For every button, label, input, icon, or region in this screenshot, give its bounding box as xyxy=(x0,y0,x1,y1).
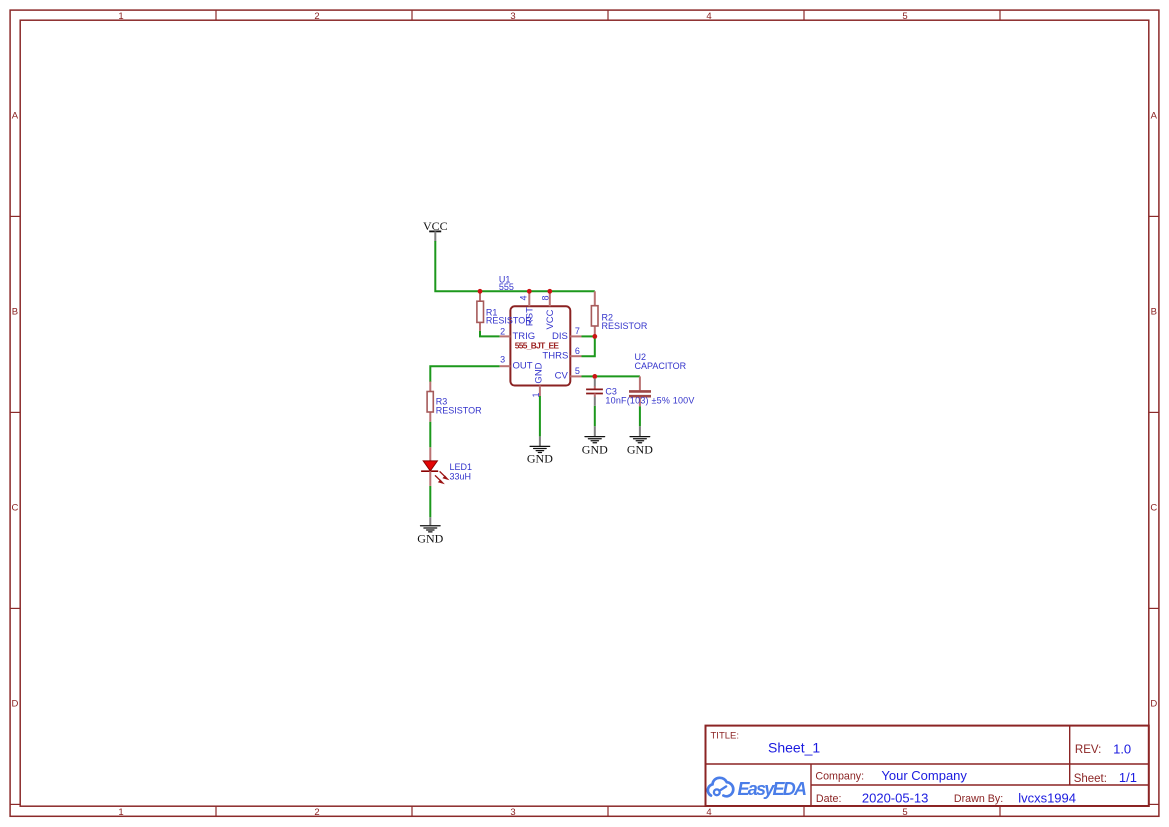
svg-text:C: C xyxy=(11,503,18,514)
svg-text:RESISTOR: RESISTOR xyxy=(602,321,648,331)
svg-text:Date:: Date: xyxy=(816,793,842,805)
svg-text:B: B xyxy=(12,307,18,318)
svg-text:RESISTOR: RESISTOR xyxy=(436,405,482,415)
svg-text:RST: RST xyxy=(525,307,536,326)
svg-text:GND: GND xyxy=(417,531,443,545)
svg-text:Sheet:: Sheet: xyxy=(1074,773,1107,785)
svg-text:7: 7 xyxy=(575,326,580,336)
svg-text:GND: GND xyxy=(534,362,545,383)
svg-text:2: 2 xyxy=(314,807,319,818)
svg-text:REV:: REV: xyxy=(1075,744,1101,756)
svg-text:1.0: 1.0 xyxy=(1113,741,1131,756)
svg-text:THRS: THRS xyxy=(542,351,568,362)
svg-text:6: 6 xyxy=(575,346,580,356)
svg-text:LED1: LED1 xyxy=(450,462,473,472)
svg-text:VCC: VCC xyxy=(545,309,556,329)
svg-text:555_BJT_EE: 555_BJT_EE xyxy=(515,341,560,351)
svg-text:5: 5 xyxy=(902,807,907,818)
svg-text:4: 4 xyxy=(706,807,711,818)
svg-text:4: 4 xyxy=(706,11,711,22)
svg-text:CV: CV xyxy=(555,370,569,381)
svg-text:2: 2 xyxy=(314,11,319,22)
svg-text:D: D xyxy=(11,699,18,710)
svg-text:Sheet_1: Sheet_1 xyxy=(768,740,820,756)
svg-text:lvcxs1994: lvcxs1994 xyxy=(1018,790,1076,805)
svg-text:Company:: Company: xyxy=(815,771,864,783)
svg-text:D: D xyxy=(1150,699,1157,710)
svg-text:2: 2 xyxy=(500,326,505,336)
svg-text:555: 555 xyxy=(499,282,514,292)
svg-text:TITLE:: TITLE: xyxy=(711,731,740,742)
svg-text:A: A xyxy=(12,111,19,122)
svg-text:GND: GND xyxy=(627,443,653,457)
svg-text:Drawn By:: Drawn By: xyxy=(954,793,1003,805)
svg-text:1: 1 xyxy=(531,392,541,397)
svg-text:EasyEDA: EasyEDA xyxy=(738,779,808,799)
svg-text:Your Company: Your Company xyxy=(881,768,967,783)
svg-text:B: B xyxy=(1151,307,1157,318)
svg-text:4: 4 xyxy=(519,295,529,300)
svg-text:5: 5 xyxy=(575,366,580,376)
svg-text:3: 3 xyxy=(510,11,515,22)
svg-text:3: 3 xyxy=(510,807,515,818)
svg-text:1: 1 xyxy=(118,807,123,818)
svg-text:GND: GND xyxy=(527,451,553,465)
svg-text:5: 5 xyxy=(902,11,907,22)
svg-text:A: A xyxy=(1151,111,1158,122)
svg-text:GND: GND xyxy=(582,443,608,457)
svg-text:1/1: 1/1 xyxy=(1119,770,1137,785)
svg-text:3: 3 xyxy=(500,355,505,365)
svg-text:C: C xyxy=(1150,503,1157,514)
svg-text:8: 8 xyxy=(541,295,551,300)
svg-text:1: 1 xyxy=(118,11,123,22)
svg-text:33uH: 33uH xyxy=(450,471,472,481)
svg-text:2020-05-13: 2020-05-13 xyxy=(862,790,929,805)
svg-text:OUT: OUT xyxy=(513,360,533,371)
svg-text:10nF(103) ±5% 100V: 10nF(103) ±5% 100V xyxy=(605,396,694,406)
svg-text:CAPACITOR: CAPACITOR xyxy=(635,361,687,371)
